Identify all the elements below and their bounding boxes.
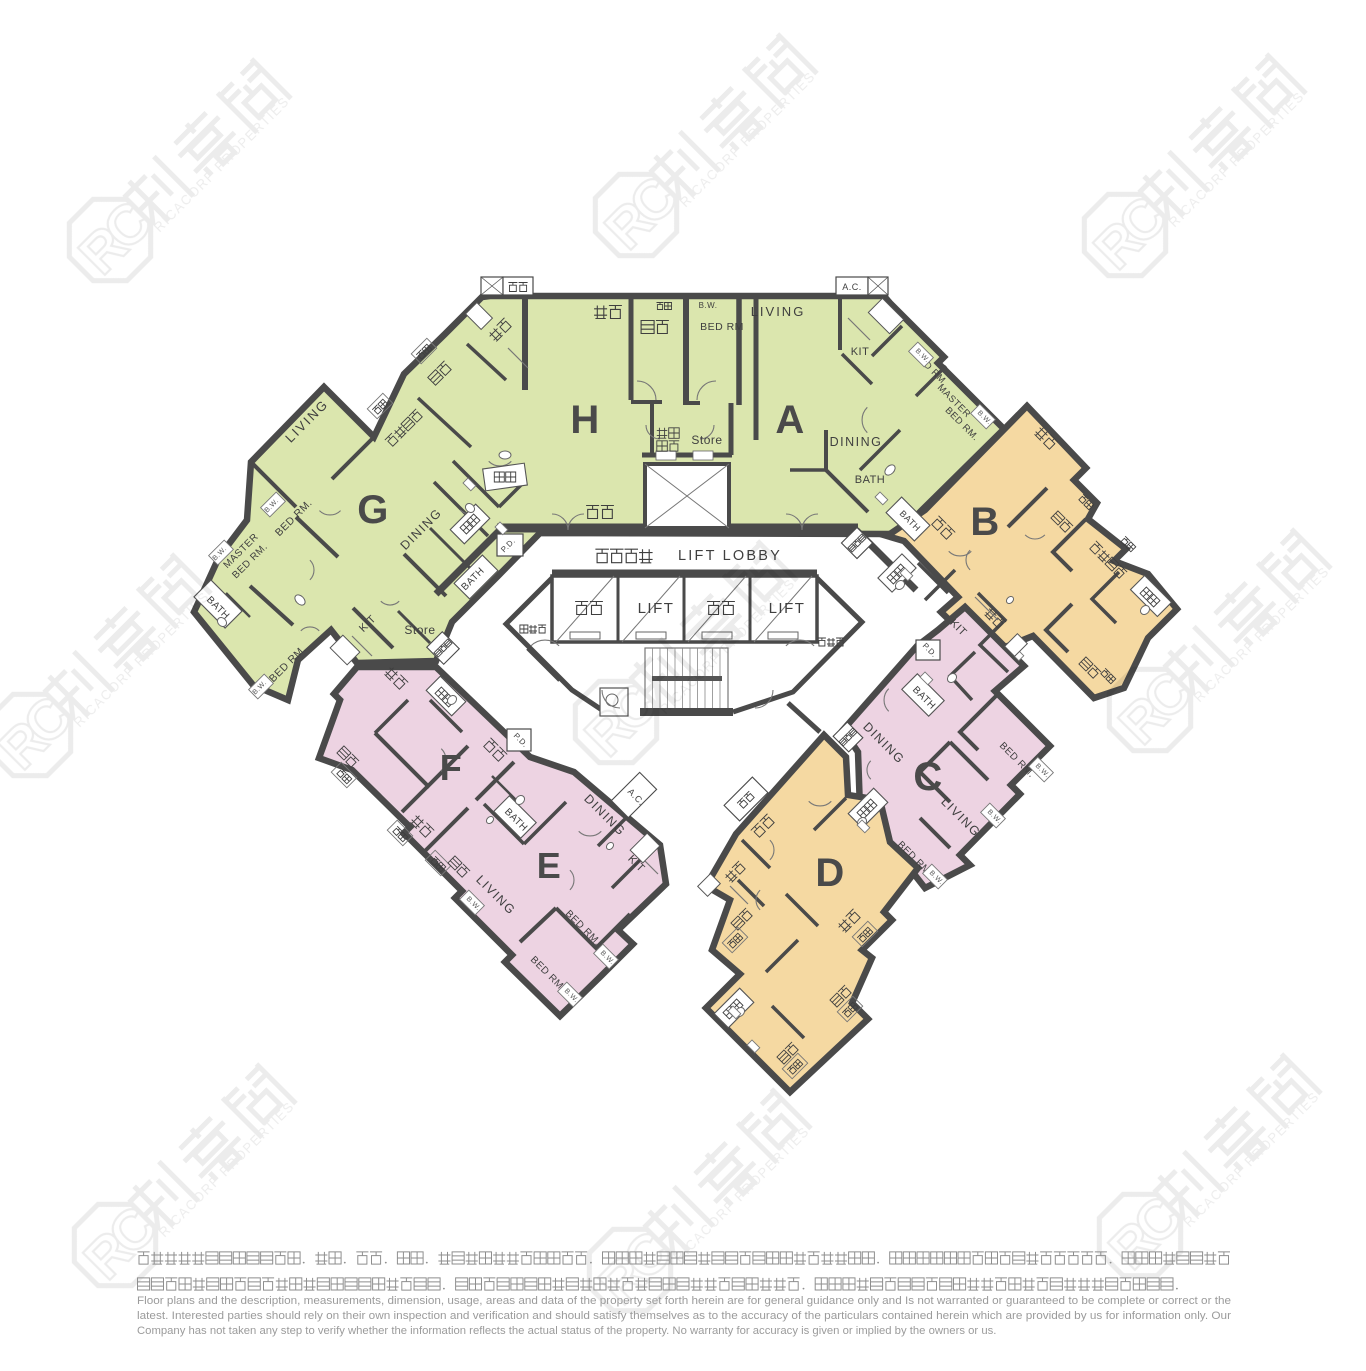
- svg-text:B: B: [970, 500, 999, 544]
- svg-text:LIVING: LIVING: [751, 304, 806, 319]
- svg-text:F: F: [440, 747, 463, 788]
- svg-text:latest. Interested parties sho: latest. Interested parties should rely o…: [137, 1310, 1231, 1322]
- svg-text:DINING: DINING: [830, 435, 883, 449]
- svg-text:A.C.: A.C.: [842, 282, 862, 292]
- svg-text:BED RM: BED RM: [700, 321, 744, 333]
- svg-text:B.W.: B.W.: [699, 301, 718, 310]
- svg-text:KIT: KIT: [851, 346, 870, 358]
- svg-text:H: H: [570, 398, 599, 442]
- svg-text:A: A: [775, 398, 804, 442]
- svg-text:C: C: [913, 755, 942, 799]
- svg-text:LIFT: LIFT: [638, 600, 675, 617]
- svg-text:D: D: [815, 851, 844, 895]
- svg-text:Store: Store: [691, 433, 722, 447]
- svg-text:Company has not taken any step: Company has not taken any step to verify…: [137, 1325, 996, 1337]
- svg-text:Floor plans and the descriptio: Floor plans and the description, measure…: [137, 1295, 1231, 1307]
- svg-text:G: G: [357, 488, 389, 532]
- svg-text:E: E: [537, 845, 562, 886]
- svg-text:Store: Store: [404, 623, 435, 637]
- svg-text:BATH: BATH: [855, 474, 886, 486]
